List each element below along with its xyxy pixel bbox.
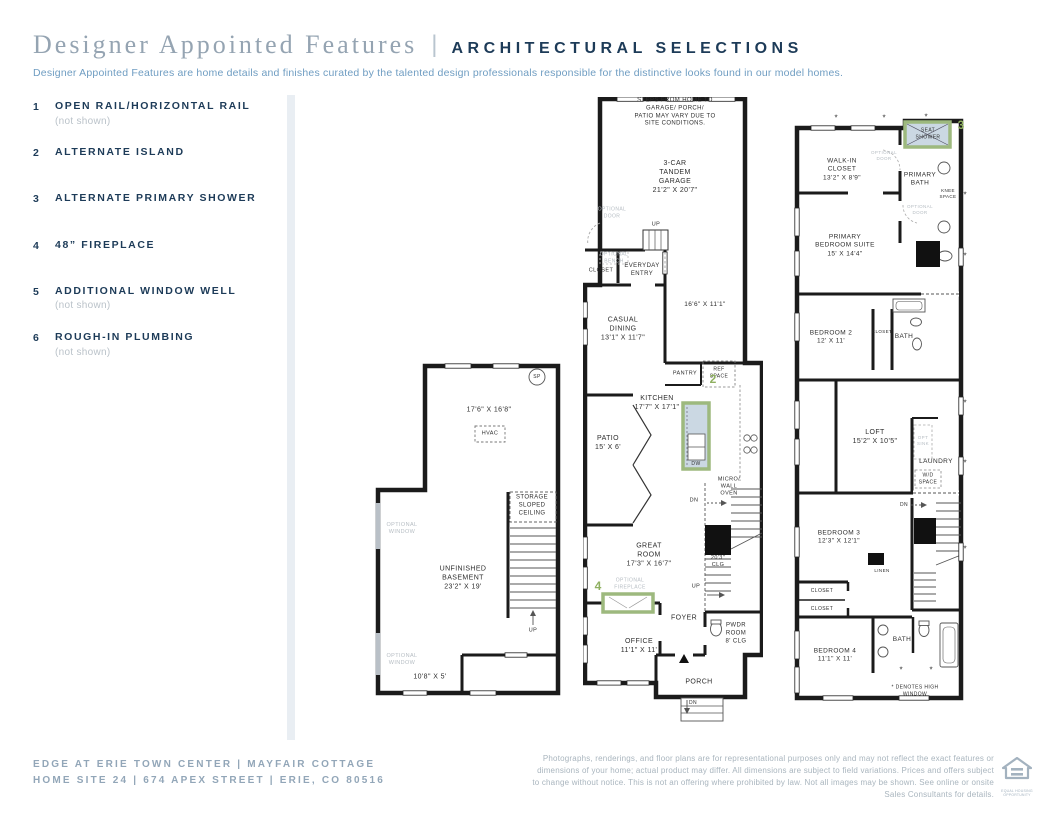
- closet-label: CLOSET: [872, 329, 892, 335]
- wall-stub: [916, 241, 940, 267]
- vertical-divider: [287, 95, 295, 740]
- feature-label: ALTERNATE ISLAND: [55, 146, 283, 159]
- address-line: HOME SITE 24 | 674 APEX STREET | ERIE, C…: [33, 773, 385, 789]
- feature-label: OPEN RAIL/HORIZONTAL RAIL: [55, 100, 283, 113]
- toilet-icon: [711, 620, 722, 636]
- feature-item-4: 4 48” FIREPLACE: [33, 239, 283, 285]
- title-separator: |: [431, 31, 437, 59]
- high-window-asterisk: *: [963, 399, 966, 408]
- feature-number: 6: [33, 331, 55, 344]
- feature-number: 4: [33, 239, 55, 252]
- high-window-asterisk: *: [963, 545, 966, 554]
- site-note: STEPS FROM HOME TO GARAGE/ PORCH/ PATIO …: [631, 97, 719, 128]
- feature-item-2: 2 ALTERNATE ISLAND: [33, 146, 283, 192]
- hall-bath-fixtures: [878, 621, 958, 667]
- bath-label: BATH: [893, 636, 911, 644]
- seat-shower-label: SEAT SHOWER: [916, 128, 941, 141]
- feature-note: (not shown): [55, 116, 283, 127]
- front-door-marker: [679, 654, 689, 663]
- header-description: Designer Appointed Features are home det…: [33, 67, 1023, 79]
- feature-callout-3: 3: [958, 118, 965, 134]
- feature-number: 2: [33, 146, 55, 159]
- optional-door-label: OPTIONAL DOOR: [907, 204, 933, 216]
- dn-label: DN: [689, 700, 697, 707]
- loft-label: LOFT 15'2" X 10'5": [853, 428, 898, 446]
- bedroom4-label: BEDROOM 4 11'1" X 11': [814, 648, 857, 665]
- basement-upper-dim: 17'6" X 16'8": [467, 405, 512, 414]
- basement-lower-dim: 10'8" X 5': [413, 672, 446, 681]
- high-window-asterisk: *: [834, 114, 837, 123]
- feature-item-1: 1 OPEN RAIL/HORIZONTAL RAIL (not shown): [33, 100, 283, 146]
- feature-note: (not shown): [55, 347, 283, 358]
- powder-room-label: PWDR ROOM 8' CLG: [726, 622, 747, 645]
- everyday-entry-label: EVERYDAY ENTRY: [624, 263, 659, 279]
- floorplan-upper-level: 3 SEAT SHOWER WALK-IN CLOSET 13'2" X 8'9…: [793, 113, 969, 705]
- feature-callout-4: 4: [595, 579, 602, 595]
- windows: [795, 126, 963, 700]
- cooktop-icon: [744, 435, 757, 453]
- garage-dim2: 16'6" X 11'1": [684, 301, 725, 309]
- up-arrow-icon: [530, 610, 536, 625]
- high-window-asterisk: *: [963, 191, 966, 200]
- optional-fireplace-label: OPTIONAL FIREPLACE: [614, 578, 645, 591]
- patio-bay-walls: [633, 405, 651, 523]
- header: Designer Appointed Features | ARCHITECTU…: [33, 30, 1023, 79]
- high-window-asterisk: *: [899, 666, 902, 675]
- optional-door-label: OPTIONAL DOOR: [598, 207, 626, 220]
- dn-label: DN: [690, 497, 699, 504]
- page-subtitle-caps: ARCHITECTURAL SELECTIONS: [452, 40, 803, 58]
- stairs: [911, 502, 961, 601]
- feature-number: 1: [33, 100, 55, 113]
- linen-label: LINEN: [874, 568, 889, 574]
- foyer-label: FOYER: [671, 613, 697, 622]
- hvac-label: HVAC: [482, 430, 498, 437]
- dn-label: DN: [900, 502, 908, 509]
- stairs: [705, 483, 762, 612]
- floorplan-basement: SP 17'6" X 16'8" HVAC OPTIONAL WINDOW ST…: [375, 363, 561, 703]
- high-window-note: * DENOTES HIGH WINDOW: [888, 685, 942, 698]
- bath-label: BATH: [895, 333, 913, 341]
- storage-label: STORAGE SLOPED CEILING: [516, 494, 548, 517]
- closet-label: CLOSET: [811, 588, 833, 595]
- pantry-label: PANTRY: [673, 370, 697, 377]
- linen-wall: [868, 553, 884, 565]
- optional-door-label: OPTIONAL DOOR: [871, 150, 897, 162]
- ceiling-height-label: 20'3" CLG: [711, 555, 725, 569]
- upper-level-drawing: [793, 113, 969, 705]
- feature-label: ADDITIONAL WINDOW WELL: [55, 285, 283, 298]
- office-label: OFFICE 11'1" X 11': [621, 637, 658, 655]
- kitchen-label: KITCHEN 17'7" X 17'1": [635, 394, 680, 412]
- legal-disclaimer: Photographs, renderings, and floor plans…: [532, 753, 994, 801]
- page: Designer Appointed Features | ARCHITECTU…: [0, 0, 1055, 815]
- dishwasher-label: DW: [691, 461, 700, 468]
- great-room-label: GREAT ROOM 17'3" X 16'7": [627, 541, 672, 568]
- walk-in-closet-label: WALK-IN CLOSET 13'2" X 8'9": [823, 157, 861, 182]
- primary-bath-fixtures: [938, 162, 952, 261]
- feature-label: ROUGH-IN PLUMBING: [55, 331, 283, 344]
- equal-housing-text: EQUAL HOUSING OPPORTUNITY: [1000, 789, 1034, 797]
- opt-sink-label: OPT SINK: [917, 435, 929, 447]
- laundry-label: LAUNDRY: [919, 458, 953, 466]
- entry-stairs: [643, 230, 668, 250]
- primary-bath-label: PRIMARY BATH: [904, 172, 936, 189]
- community-line: EDGE AT ERIE TOWN CENTER | MAYFAIR COTTA…: [33, 757, 385, 773]
- up-label: UP: [529, 627, 537, 634]
- feature-callout-2: 2: [710, 372, 717, 388]
- high-window-asterisk: *: [882, 114, 885, 123]
- feature-item-6: 6 ROUGH-IN PLUMBING (not shown): [33, 331, 283, 377]
- feature-label: 48” FIREPLACE: [55, 239, 283, 252]
- fireplace-highlight: [603, 594, 653, 612]
- patio-label: PATIO 15' X 6': [595, 434, 621, 452]
- porch-label: PORCH: [685, 677, 712, 686]
- interior-wall: [462, 655, 558, 693]
- property-info: EDGE AT ERIE TOWN CENTER | MAYFAIR COTTA…: [33, 757, 385, 789]
- unfinished-basement-label: UNFINISHED BASEMENT 23'2" X 19': [440, 564, 487, 591]
- micro-wall-oven-label: MICRO/ WALL OVEN: [718, 476, 740, 497]
- high-window-asterisk: *: [963, 252, 966, 261]
- page-title: Designer Appointed Features: [33, 30, 417, 60]
- casual-dining-label: CASUAL DINING 13'1" X 11'7": [601, 315, 645, 342]
- features-list: 1 OPEN RAIL/HORIZONTAL RAIL (not shown) …: [33, 100, 283, 377]
- up-label: UP: [692, 583, 700, 590]
- sump-pump-label: SP: [533, 374, 540, 381]
- feature-number: 5: [33, 285, 55, 298]
- feature-item-5: 5 ADDITIONAL WINDOW WELL (not shown): [33, 285, 283, 331]
- stairs: [510, 528, 556, 608]
- feature-number: 3: [33, 192, 55, 205]
- island-highlight: [683, 403, 709, 469]
- feature-note: (not shown): [55, 300, 283, 311]
- closet-label: CLOSET: [811, 606, 833, 613]
- equal-housing-logo: EQUAL HOUSING OPPORTUNITY: [1000, 757, 1034, 797]
- bedroom3-label: BEDROOM 3 12'3" X 12'1": [818, 530, 861, 547]
- feature-item-3: 3 ALTERNATE PRIMARY SHOWER: [33, 192, 283, 238]
- bedroom2-label: BEDROOM 2 12' X 11': [810, 330, 853, 347]
- up-label: UP: [652, 221, 660, 228]
- feature-label: ALTERNATE PRIMARY SHOWER: [55, 192, 283, 205]
- knee-space-label: KNEE SPACE: [940, 188, 957, 200]
- high-window-asterisk: *: [924, 113, 927, 122]
- equal-housing-house-icon: [1002, 757, 1032, 783]
- bath-fixtures: [893, 299, 925, 350]
- primary-bedroom-label: PRIMARY BEDROOM SUITE 15' X 14'4": [815, 233, 875, 258]
- high-window-asterisk: *: [929, 666, 932, 675]
- wd-space-label: W/D SPACE: [919, 473, 938, 486]
- garage-label: 3-CAR TANDEM GARAGE 21'2" X 20'7": [653, 159, 698, 195]
- closet-label: CLOSET: [589, 267, 613, 274]
- porch-steps: [681, 698, 723, 721]
- floorplan-main-level: STEPS FROM HOME TO GARAGE/ PORCH/ PATIO …: [583, 97, 763, 725]
- optional-window-label: OPTIONAL WINDOW: [386, 653, 417, 667]
- high-window-asterisk: *: [963, 459, 966, 468]
- optional-window-label: OPTIONAL WINDOW: [386, 522, 417, 536]
